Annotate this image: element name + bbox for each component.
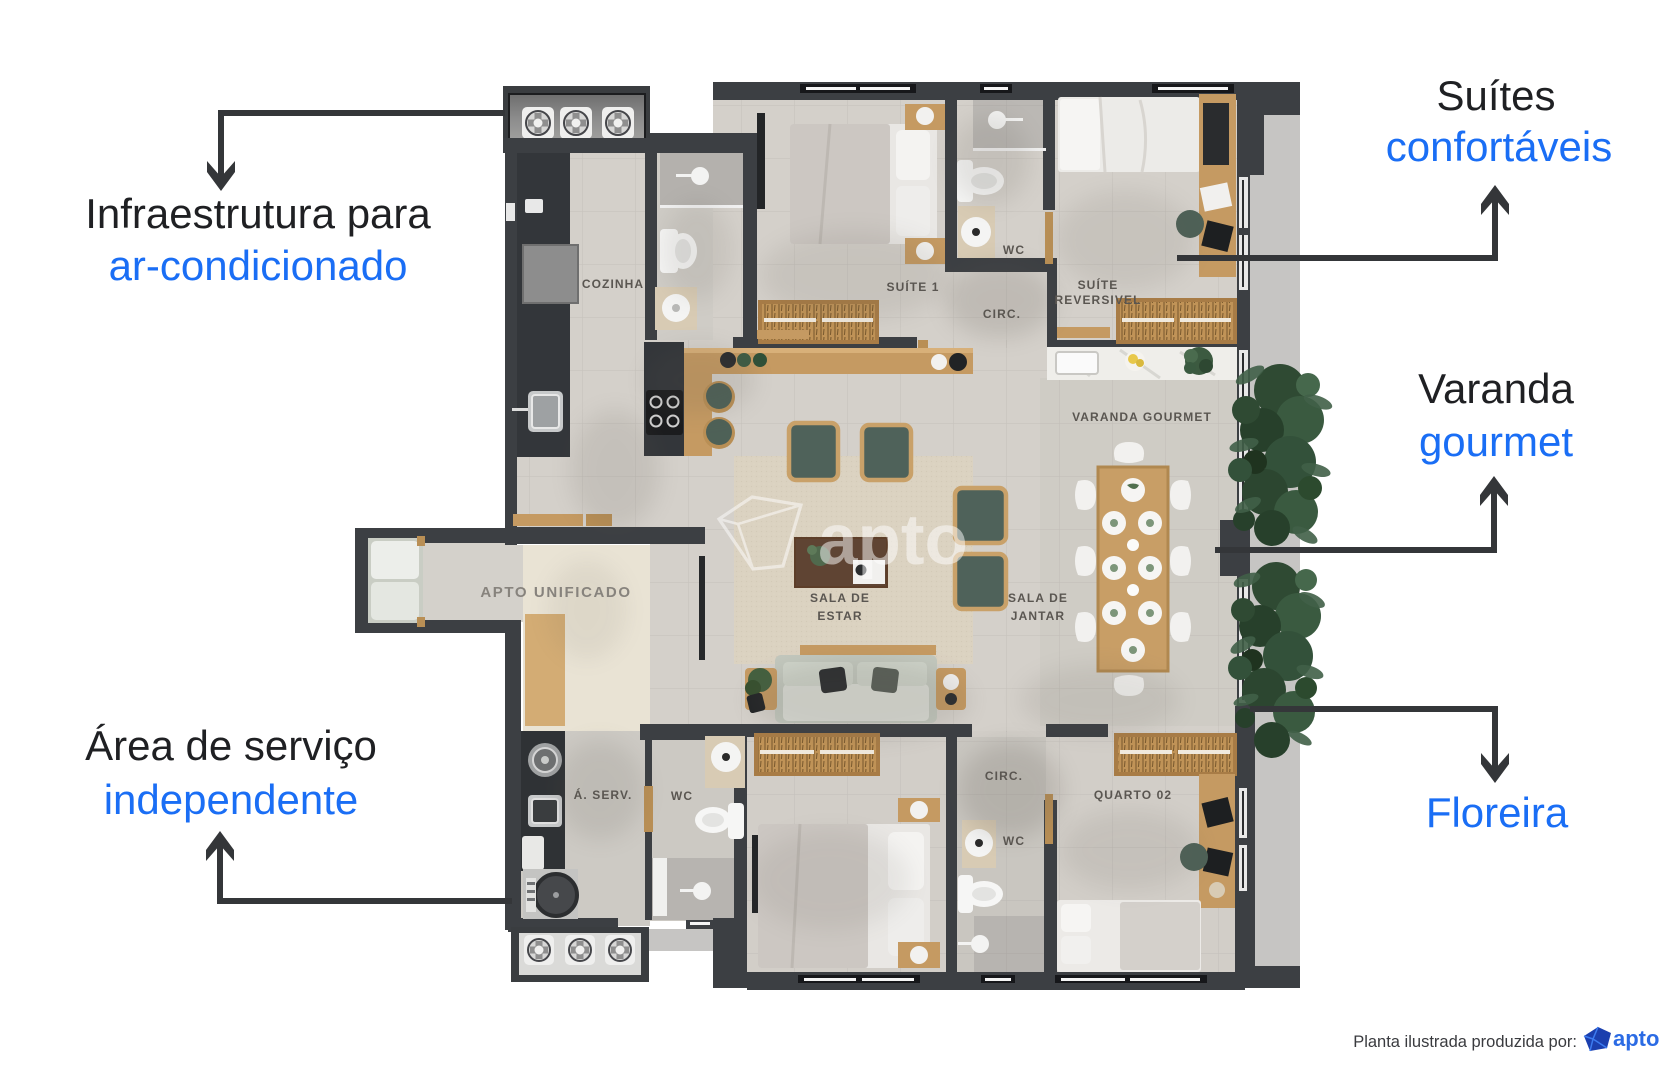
svg-text:APTO UNIFICADO: APTO UNIFICADO [480, 584, 631, 601]
svg-text:gourmet: gourmet [1419, 418, 1573, 465]
svg-text:REVERSIVEL: REVERSIVEL [1054, 293, 1141, 307]
svg-text:SUÍTE: SUÍTE [1078, 277, 1119, 292]
svg-text:Á. SERV.: Á. SERV. [574, 787, 633, 802]
svg-text:apto: apto [1613, 1026, 1659, 1051]
svg-text:CIRC.: CIRC. [983, 307, 1021, 321]
svg-text:WC: WC [671, 789, 693, 803]
svg-text:ESTAR: ESTAR [817, 609, 862, 623]
svg-text:CIRC.: CIRC. [985, 769, 1023, 783]
svg-text:confortáveis: confortáveis [1386, 123, 1612, 170]
svg-text:ar-condicionado: ar-condicionado [109, 242, 408, 289]
svg-text:independente: independente [104, 776, 359, 823]
svg-text:JANTAR: JANTAR [1011, 609, 1065, 623]
svg-text:Floreira: Floreira [1426, 789, 1569, 836]
svg-text:WC: WC [1003, 834, 1025, 848]
svg-text:SALA DE: SALA DE [810, 591, 870, 605]
svg-text:SALA DE: SALA DE [1008, 591, 1068, 605]
svg-text:apto: apto [818, 501, 968, 580]
svg-text:Área de serviço: Área de serviço [85, 722, 377, 769]
svg-text:Suítes: Suítes [1436, 72, 1555, 119]
svg-text:QUARTO 02: QUARTO 02 [1094, 788, 1172, 802]
svg-text:SUÍTE 1: SUÍTE 1 [886, 279, 939, 294]
svg-text:Varanda: Varanda [1418, 365, 1574, 412]
svg-text:Infraestrutura para: Infraestrutura para [85, 190, 431, 237]
svg-text:VARANDA GOURMET: VARANDA GOURMET [1072, 410, 1212, 424]
svg-text:WC: WC [1003, 243, 1025, 257]
svg-text:Planta ilustrada produzida por: Planta ilustrada produzida por: [1353, 1033, 1577, 1051]
svg-text:COZINHA: COZINHA [582, 277, 644, 291]
